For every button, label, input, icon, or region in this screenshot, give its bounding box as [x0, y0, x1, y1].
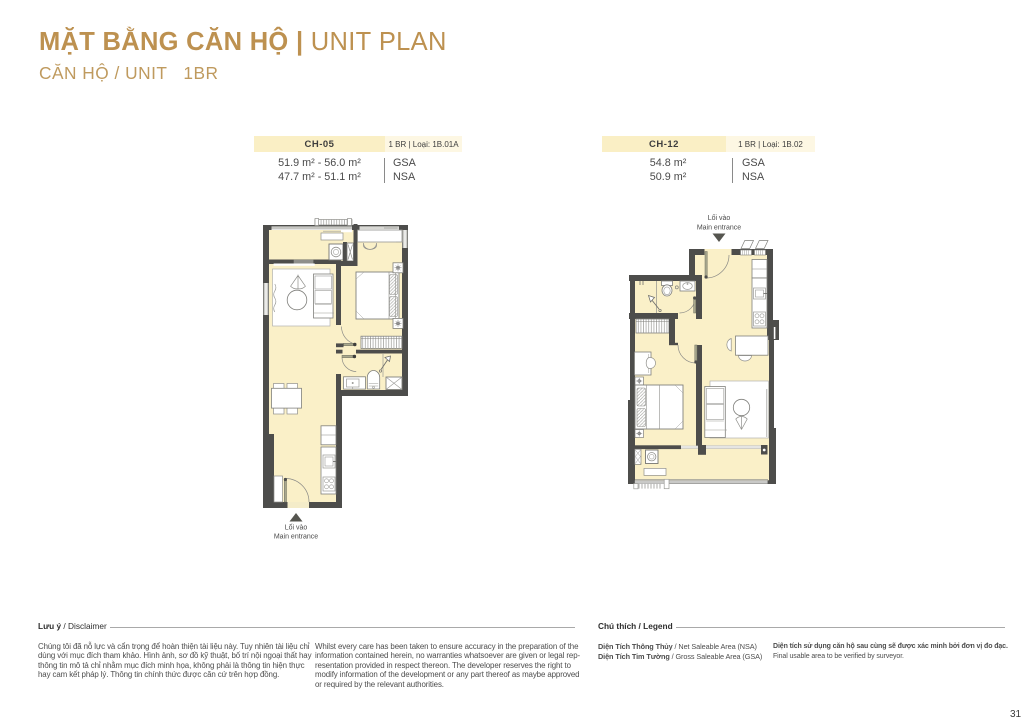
svg-text:Lối vào: Lối vào — [285, 523, 308, 532]
svg-text:Main entrance: Main entrance — [697, 225, 741, 232]
svg-text:Lối vào: Lối vào — [708, 213, 731, 222]
svg-text:Main entrance: Main entrance — [274, 534, 318, 541]
